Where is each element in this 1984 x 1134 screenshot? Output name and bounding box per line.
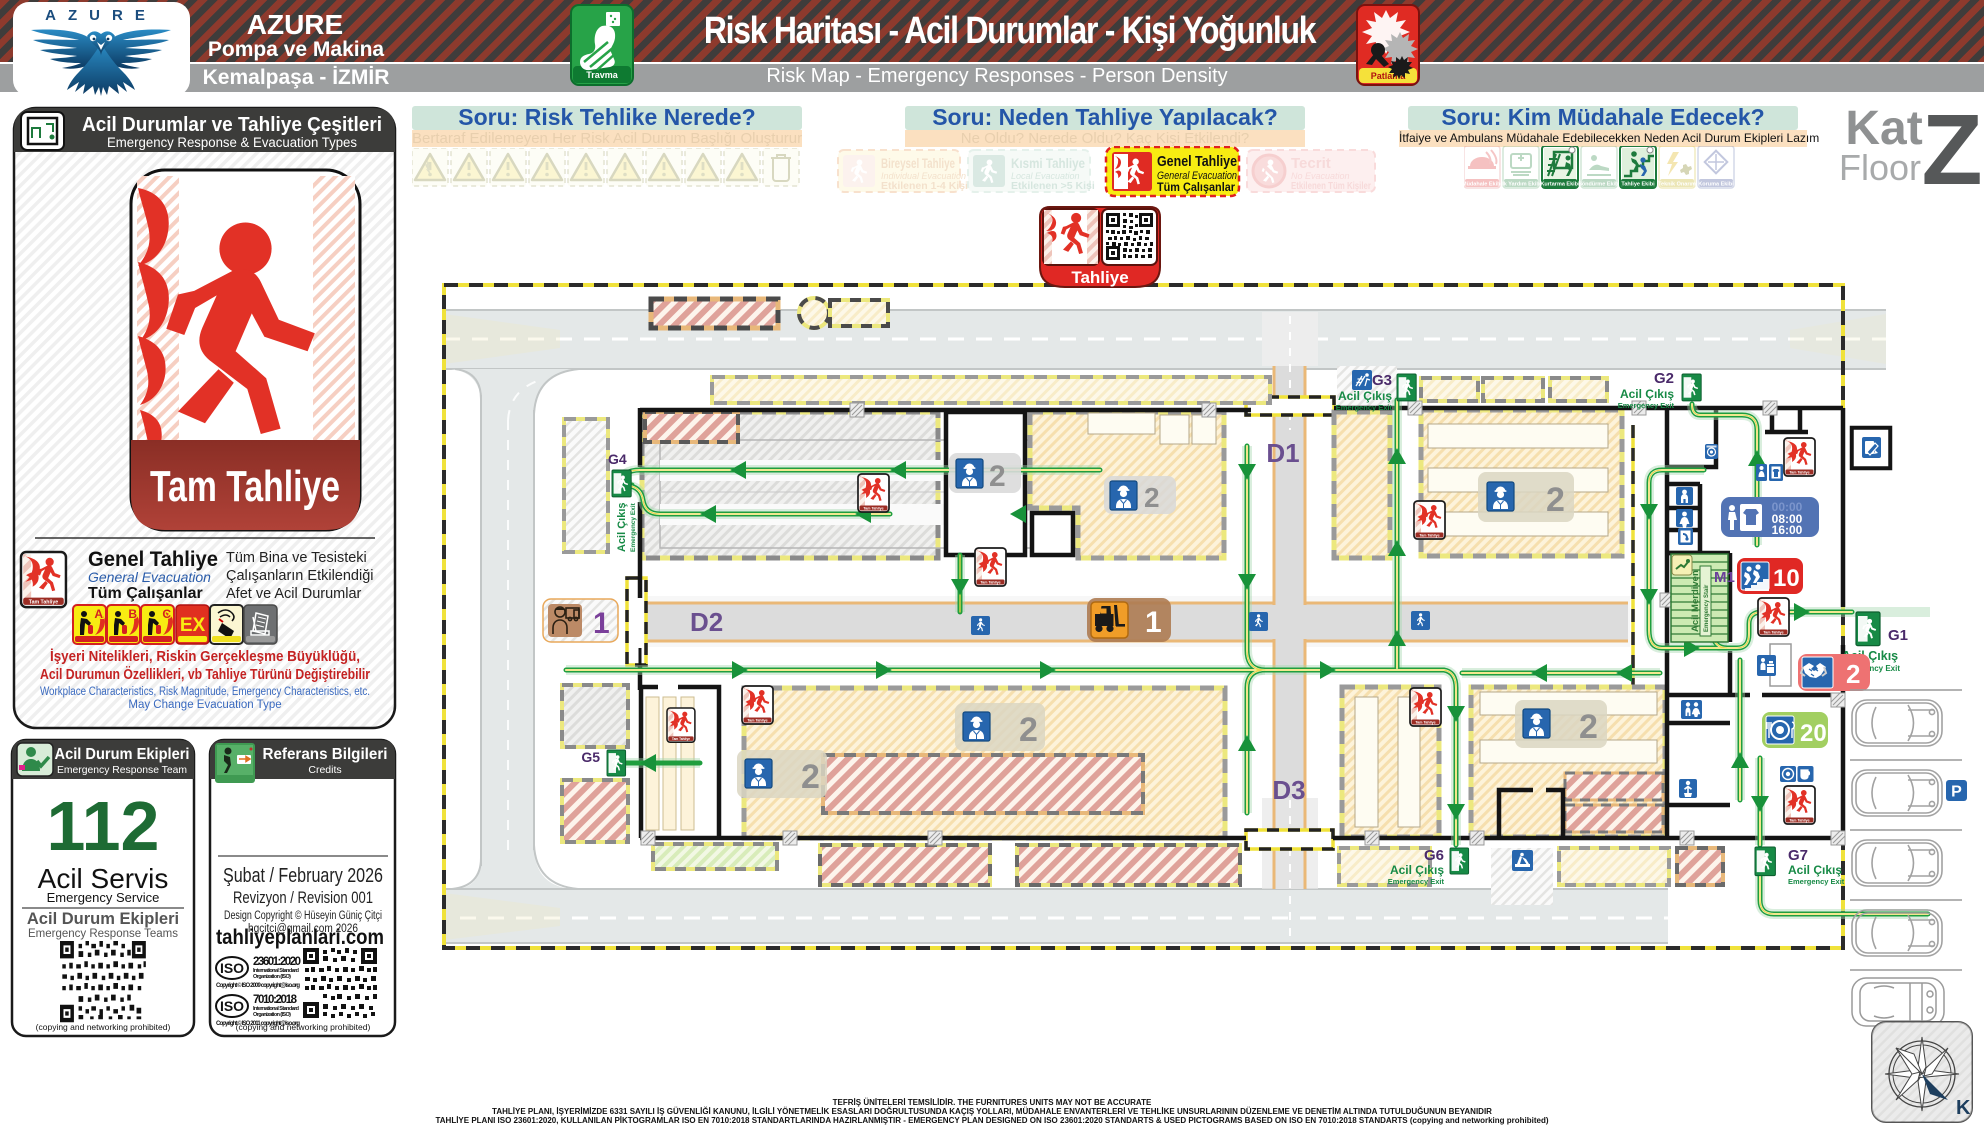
svg-text:112: 112 [47, 787, 160, 865]
svg-text:Emergency Exit: Emergency Exit [1788, 877, 1845, 886]
svg-text:Şubat / February 2026: Şubat / February 2026 [223, 865, 383, 887]
svg-text:Genel Tahliye: Genel Tahliye [1157, 153, 1237, 170]
svg-text:Z: Z [1921, 98, 1982, 198]
svg-text:1: 1 [593, 607, 610, 640]
svg-text:Organization (ISO): Organization (ISO) [253, 974, 291, 980]
svg-text:Acil Durum Ekipleri: Acil Durum Ekipleri [55, 746, 190, 763]
svg-text:ISO: ISO [220, 998, 244, 1014]
svg-text:16:00: 16:00 [1772, 523, 1803, 537]
svg-text:(copying and networking prohib: (copying and networking prohibited) [36, 1022, 171, 1032]
svg-text:G6: G6 [1424, 847, 1444, 864]
svg-text:Afet ve Acil Durumlar: Afet ve Acil Durumlar [226, 586, 362, 602]
svg-text:tahliyeplanlari.com: tahliyeplanlari.com [216, 926, 384, 949]
svg-text:Acil Çıkış: Acil Çıkış [616, 502, 628, 552]
svg-text:1: 1 [1145, 606, 1162, 639]
svg-text:Credits: Credits [308, 764, 341, 776]
svg-text:Emergency Response Teams: Emergency Response Teams [28, 928, 178, 940]
svg-text:Emergency Exit: Emergency Exit [1336, 403, 1393, 412]
svg-text:K: K [1956, 1097, 1971, 1119]
svg-text:Etkilenen 1-4 Kişi: Etkilenen 1-4 Kişi [881, 180, 968, 192]
svg-text:Emergency Exit: Emergency Exit [1388, 877, 1445, 886]
svg-text:Tüm Çalışanlar: Tüm Çalışanlar [1157, 180, 1235, 194]
svg-text:Acil Çıkış: Acil Çıkış [1338, 389, 1392, 403]
svg-text:M1: M1 [1714, 569, 1735, 586]
svg-text:Teknik Onarım: Teknik Onarım [1658, 182, 1696, 188]
svg-text:C: C [162, 607, 171, 621]
svg-text:Emergency Response & Evacuatio: Emergency Response & Evacuation Types [107, 135, 357, 150]
svg-text:G4: G4 [608, 451, 627, 467]
svg-text:Travma: Travma [586, 70, 619, 80]
svg-text:EX: EX [180, 615, 206, 636]
svg-text:Revizyon / Revision 001: Revizyon / Revision 001 [233, 889, 373, 907]
svg-text:2: 2 [1144, 482, 1160, 513]
svg-text:Tecrit: Tecrit [1291, 155, 1331, 172]
svg-text:Acil Çıkış: Acil Çıkış [1788, 863, 1842, 877]
svg-text:B: B [128, 607, 137, 621]
svg-text:G5: G5 [581, 749, 600, 765]
svg-text:Copyright © ISO 2009 copyright: Copyright © ISO 2009 copyright@iso.org [216, 982, 300, 989]
svg-text:G2: G2 [1654, 370, 1674, 387]
svg-text:Etkilenen >5 Kişi: Etkilenen >5 Kişi [1011, 180, 1095, 192]
svg-text:Emergency Service: Emergency Service [47, 890, 160, 905]
svg-text:2: 2 [1846, 659, 1860, 689]
svg-text:Müdahale Ekibi: Müdahale Ekibi [1464, 182, 1502, 188]
svg-text:Tam Tahliye: Tam Tahliye [150, 462, 340, 511]
svg-text:Genel Tahliye: Genel Tahliye [88, 548, 218, 571]
svg-text:2: 2 [1579, 708, 1598, 746]
svg-text:İşyeri Nitelikleri, Riskin Ger: İşyeri Nitelikleri, Riskin Gerçekleşme B… [50, 648, 360, 665]
svg-text:Tahliye: Tahliye [1071, 268, 1128, 287]
svg-text:Emergency Exit: Emergency Exit [630, 502, 637, 552]
svg-text:Acil Çıkış: Acil Çıkış [1620, 387, 1674, 401]
svg-text:7010:2018: 7010:2018 [253, 994, 298, 1006]
svg-text:D2: D2 [690, 607, 723, 637]
svg-text:Tahliye Ekibi: Tahliye Ekibi [1621, 182, 1655, 188]
svg-text:Bireysel Tahliye: Bireysel Tahliye [881, 155, 955, 171]
svg-text:(copying and networking prohib: (copying and networking prohibited) [236, 1022, 371, 1032]
svg-text:Workplace Characteristics, Ris: Workplace Characteristics, Risk Magnitud… [40, 686, 370, 698]
svg-text:Acil Durum Ekipleri: Acil Durum Ekipleri [27, 910, 179, 928]
svg-text:General Evacuation: General Evacuation [88, 569, 211, 585]
svg-text:20: 20 [1800, 720, 1827, 747]
svg-text:May Change Evacuation Type: May Change Evacuation Type [128, 699, 281, 711]
svg-text:Söndürme Ekibi: Söndürme Ekibi [1578, 182, 1620, 188]
svg-text:2: 2 [801, 758, 820, 796]
svg-text:Tüm Bina ve Tesisteki: Tüm Bina ve Tesisteki [226, 550, 367, 566]
svg-text:ISO: ISO [220, 960, 244, 976]
svg-text:AZURE: AZURE [45, 7, 157, 24]
svg-text:P: P [1951, 784, 1962, 801]
svg-text:23601:2020: 23601:2020 [253, 956, 301, 968]
svg-text:Acil Merdiven: Acil Merdiven [1690, 570, 1701, 632]
svg-text:G3: G3 [1372, 372, 1392, 389]
svg-text:10: 10 [1773, 565, 1800, 592]
svg-text:A: A [94, 607, 103, 621]
svg-text:Koruma Ekibi: Koruma Ekibi [1698, 182, 1734, 188]
svg-text:Çalışanların Etkilendiği: Çalışanların Etkilendiği [226, 568, 374, 584]
svg-text:G7: G7 [1788, 847, 1808, 864]
svg-text:Acil Durumun Özellikleri, vb T: Acil Durumun Özellikleri, vb Tahliye Tür… [40, 666, 370, 683]
svg-text:2: 2 [989, 460, 1006, 493]
svg-text:Emergency Exit: Emergency Exit [1618, 401, 1675, 410]
svg-text:Kısmi Tahliye: Kısmi Tahliye [1011, 155, 1085, 171]
svg-text:Acil Çıkış: Acil Çıkış [1390, 863, 1444, 877]
svg-text:Organization (ISO): Organization (ISO) [253, 1012, 291, 1018]
svg-text:Design Copyright © Hüseyin Gün: Design Copyright © Hüseyin Güniç Çitçi [224, 910, 382, 922]
svg-text:Floor: Floor [1839, 147, 1921, 188]
svg-text:D3: D3 [1272, 775, 1305, 805]
svg-text:Acil Durumlar ve Tahliye Çeşit: Acil Durumlar ve Tahliye Çeşitleri [82, 114, 382, 136]
svg-text:G1: G1 [1888, 627, 1908, 644]
svg-text:Emergency Stair: Emergency Stair [1704, 584, 1710, 632]
svg-text:Emergency Response Team: Emergency Response Team [57, 764, 187, 776]
svg-text:2: 2 [1019, 711, 1038, 749]
svg-text:2: 2 [1546, 481, 1565, 519]
svg-text:D1: D1 [1266, 438, 1299, 468]
svg-text:Tüm Çalışanlar: Tüm Çalışanlar [88, 585, 203, 602]
svg-text:Referans Bilgileri: Referans Bilgileri [263, 746, 388, 763]
svg-text:Etkilenen Tüm Kişiler: Etkilenen Tüm Kişiler [1291, 181, 1371, 192]
svg-text:No Evacuation: No Evacuation [1291, 171, 1350, 181]
svg-text:İlk Yardım Ekibi: İlk Yardım Ekibi [1501, 181, 1542, 188]
svg-text:Kurtarma Ekibi: Kurtarma Ekibi [1540, 182, 1580, 188]
